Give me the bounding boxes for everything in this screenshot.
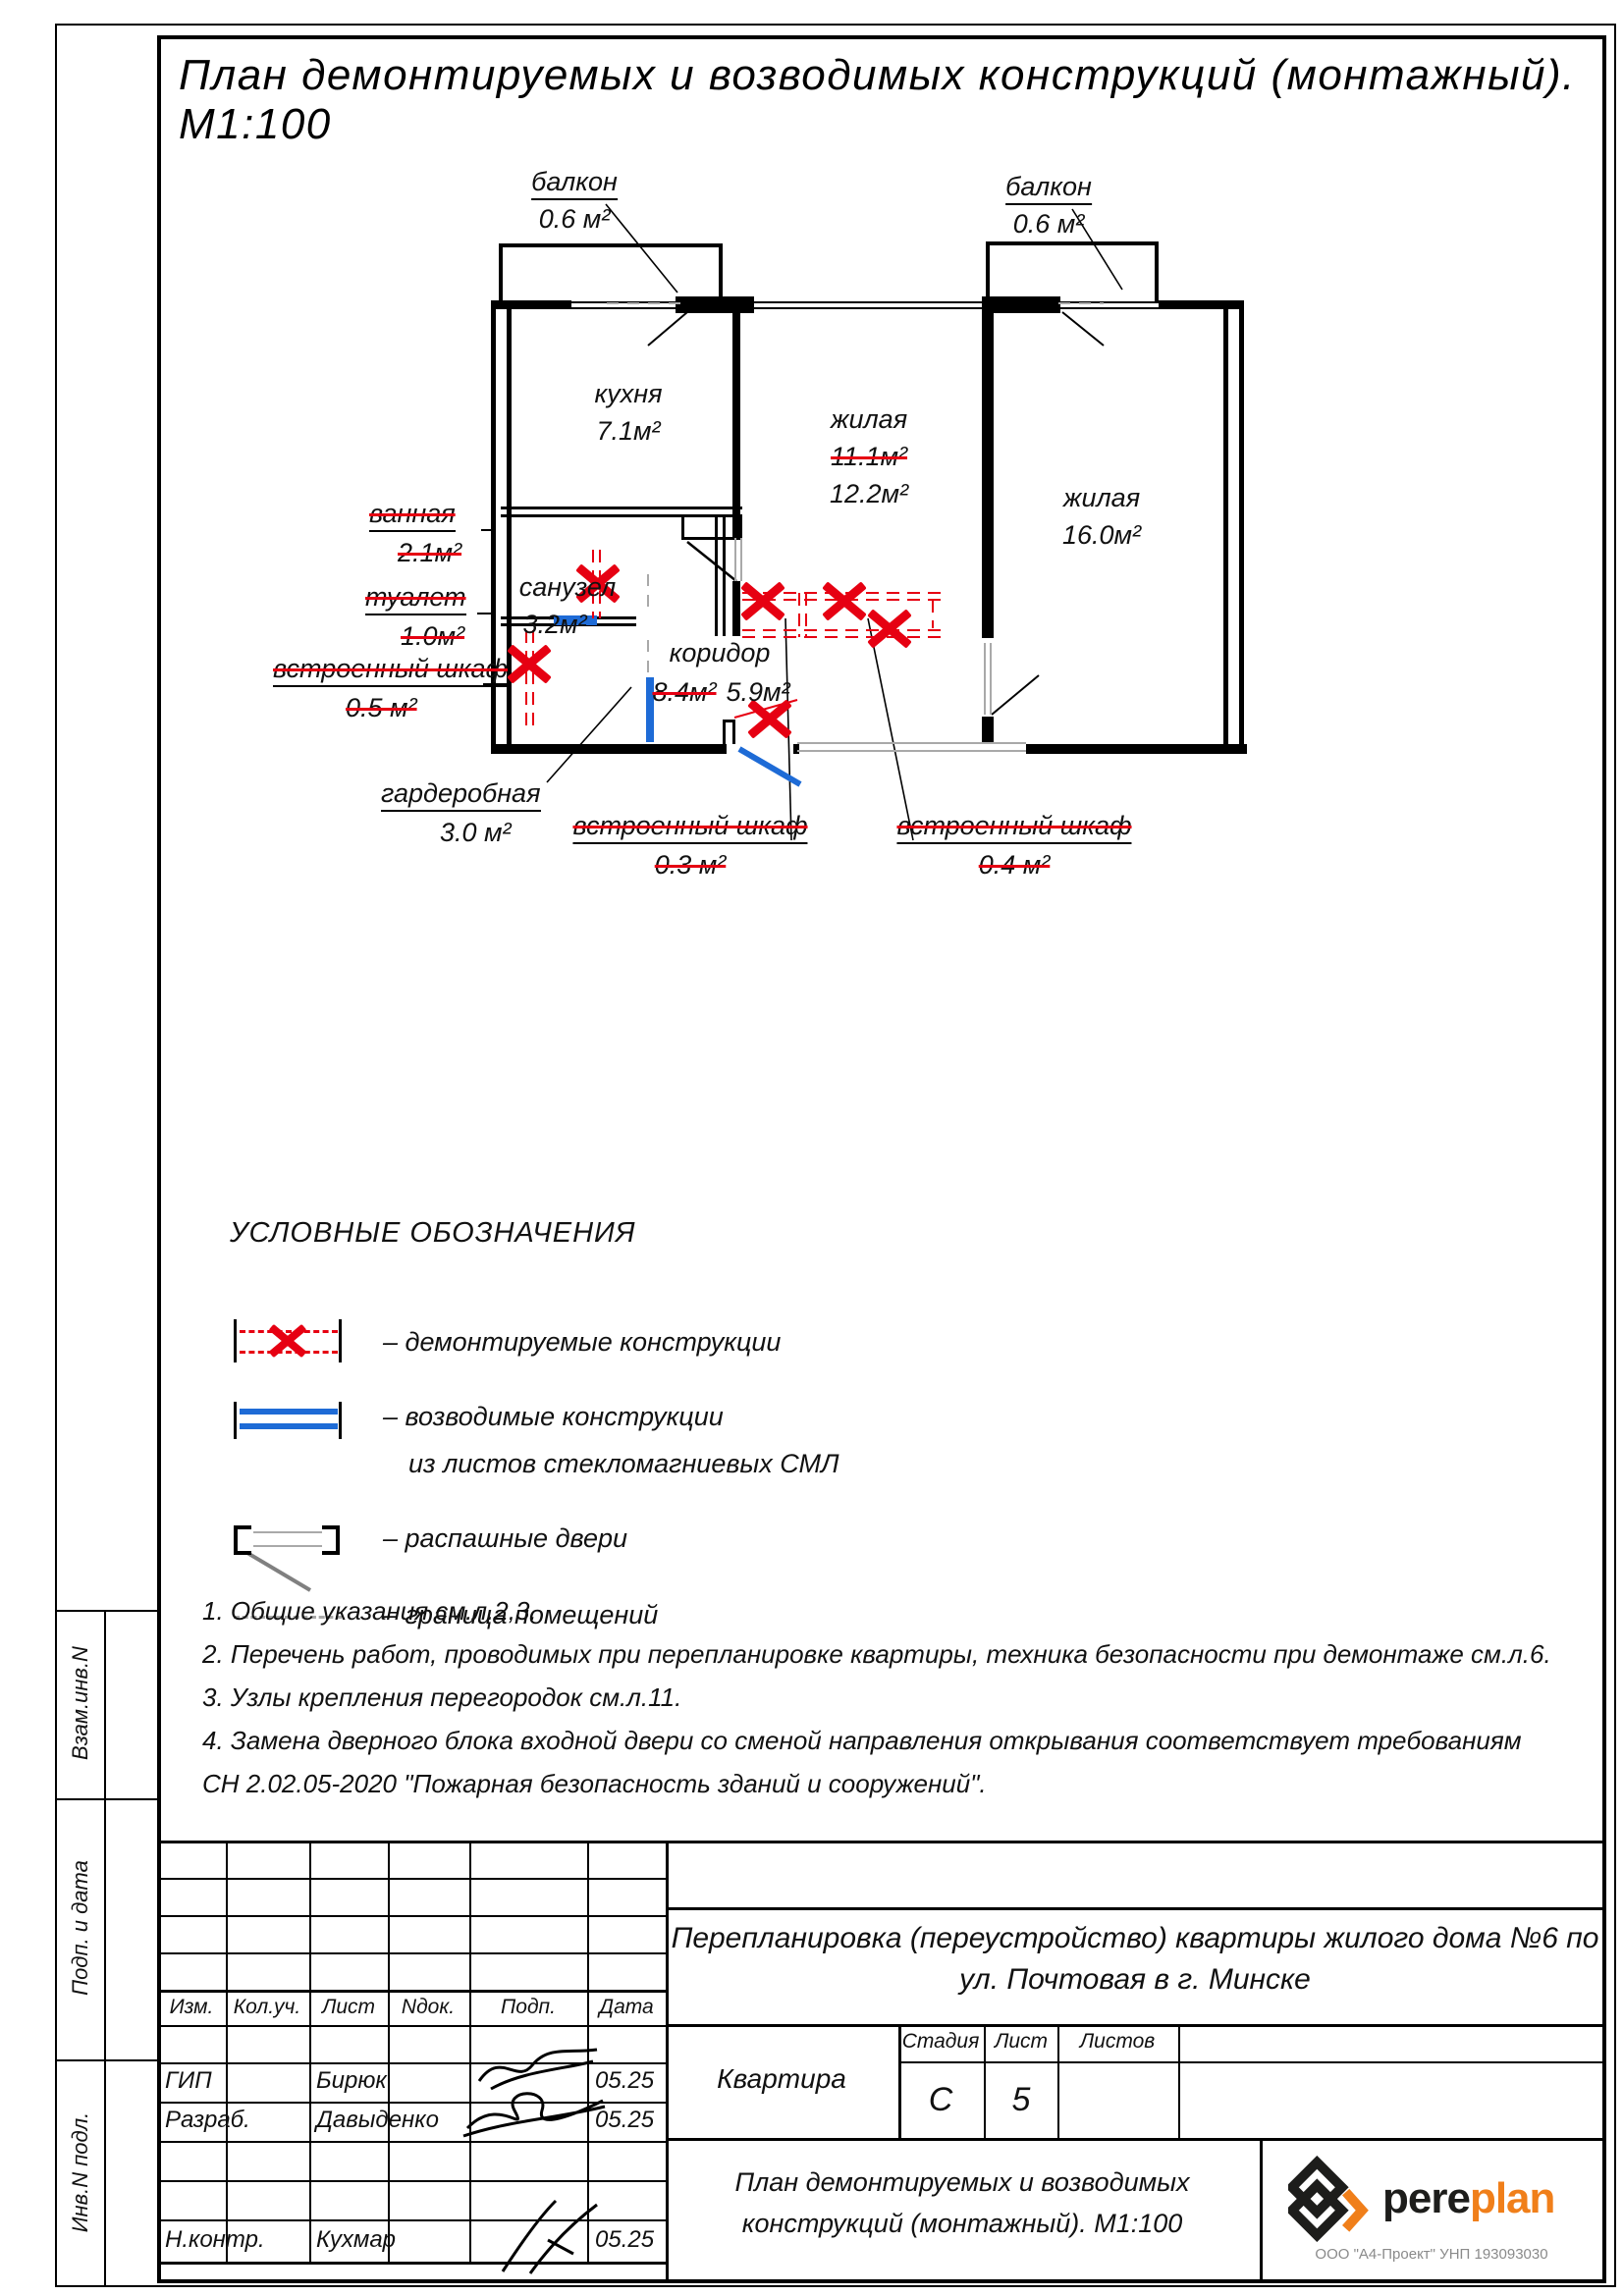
stamp-line: [984, 2024, 986, 2138]
door-swing-balcony-right: [1062, 312, 1104, 346]
stamp-role-razrab: Разраб.: [165, 2107, 250, 2134]
stamp-sheet-label: Лист: [995, 2030, 1048, 2054]
legend-symbol-new: [240, 1409, 338, 1415]
room-label-living2: жилая: [1063, 483, 1140, 513]
room-label-living1: жилая: [831, 404, 907, 435]
door-swing-balcony-left: [648, 312, 687, 346]
stamp-line: [388, 1841, 390, 2264]
stamp-line: [226, 1841, 228, 2264]
legend-symbol-new: [339, 1402, 342, 1439]
legend-item-new: – возводимые конструкции: [383, 1402, 724, 1432]
stamp-col-izm: Изм.: [170, 1996, 214, 2019]
stamp-line: [157, 2180, 666, 2182]
sidebar-label-vzam: Взам.инв.N: [68, 1625, 93, 1782]
stamp-col-list: Лист: [322, 1996, 375, 2019]
room-area-closet1: 0.3 м²: [655, 850, 727, 881]
legend-heading: УСЛОВНЫЕ ОБОЗНАЧЕНИЯ: [230, 1217, 636, 1250]
legend-symbol-demolition: [339, 1319, 342, 1362]
company-logo: pereplan: [1288, 2156, 1554, 2242]
room-label-closet2: встроенный шкаф: [896, 811, 1131, 844]
room-area-sanuzel: 3.2м²: [522, 610, 586, 640]
stamp-object: Квартира: [717, 2063, 846, 2095]
stamp-line: [309, 1841, 311, 2264]
sidebar-divider: [55, 1798, 157, 1800]
legend-symbol-new: [234, 1402, 237, 1439]
room-label-wardrobe: гардеробная: [381, 778, 541, 812]
room-label-sanuzel: санузел: [519, 572, 616, 603]
room-label-closet1: встроенный шкаф: [572, 811, 807, 844]
leader-balcony-left: [606, 204, 677, 293]
stamp-doc-title-line1: План демонтируемых и возводимых: [734, 2167, 1189, 2198]
door-swing-kitchen: [687, 542, 736, 581]
stamp-line: [157, 2025, 666, 2027]
stamp-name-razrab: Давыденко: [316, 2107, 439, 2134]
room-label-toilet: туалет: [365, 582, 466, 615]
room-area-living1-old: 11.1м²: [831, 442, 907, 472]
stamp-sheet-value: 5: [1012, 2081, 1031, 2119]
demolition-x-icon: [822, 579, 867, 624]
stamp-line: [157, 1915, 666, 1917]
note-line: 1. Общие указания см.л.2,3.: [202, 1596, 537, 1627]
stamp-stage-label: Стадия: [902, 2030, 980, 2054]
note-line: 2. Перечень работ, проводимых при перепл…: [202, 1639, 1551, 1670]
stamp-line: [666, 1907, 1606, 1910]
stamp-project-line2: ул. Почтовая в г. Минске: [959, 1963, 1311, 1997]
room-area-wardrobe: 3.0 м²: [440, 818, 512, 848]
room-label-closet-left: встроенный шкаф: [273, 654, 508, 687]
signature: [460, 2081, 607, 2142]
stamp-doc-title-line2: конструкций (монтажный). М1:100: [742, 2209, 1183, 2239]
stamp-line: [898, 2024, 901, 2138]
stamp-col-podp: Подп.: [501, 1996, 556, 2019]
stamp-line: [157, 1878, 666, 1880]
room-area-living1-new: 12.2м²: [830, 479, 908, 509]
legend-item-new-2: из листов стекломагниевых СМЛ: [408, 1449, 839, 1479]
legend-item-demolition: – демонтируемые конструкции: [383, 1327, 781, 1358]
room-area-kitchen: 7.1м²: [596, 416, 660, 447]
room-label-kitchen: кухня: [594, 379, 662, 409]
stamp-col-data: Дата: [599, 1996, 653, 2019]
stamp-stage-value: С: [929, 2081, 953, 2119]
leader-wardrobe: [547, 687, 631, 782]
logo-text-plan: plan: [1470, 2174, 1554, 2222]
stamp-line: [1260, 2138, 1263, 2281]
stamp-sheets-label: Листов: [1080, 2030, 1155, 2054]
room-area-bathroom: 2.1м²: [398, 538, 461, 568]
stamp-line: [1178, 2024, 1180, 2138]
logo-text-pere: pere: [1382, 2174, 1470, 2222]
demolition-x-icon: [867, 607, 912, 652]
room-area-balcony-left: 0.6 м²: [539, 204, 611, 235]
room-label-balcony-left: балкон: [531, 167, 618, 200]
room-area-corridor-new: 5.9м²: [726, 677, 789, 708]
room-label-corridor: коридор: [670, 638, 771, 668]
stamp-line: [666, 2138, 1606, 2141]
stamp-name-nkontr: Кухмар: [316, 2226, 396, 2254]
signature: [491, 2195, 609, 2279]
room-area-toilet: 1.0м²: [401, 621, 464, 652]
legend-symbol-door: [253, 1531, 322, 1533]
stamp-line: [666, 2024, 1606, 2027]
legend-item-doors: – распашные двери: [383, 1523, 627, 1554]
stamp-line: [157, 1841, 1606, 1843]
legend-door-swing: [247, 1553, 310, 1590]
legend-symbol-door: [322, 1551, 340, 1555]
sidebar-label-podp: Подп. и дата: [68, 1849, 93, 2006]
sidebar-divider: [104, 1610, 106, 2287]
stamp-role-nkontr: Н.контр.: [165, 2226, 265, 2254]
stamp-line: [1057, 2024, 1059, 2138]
new-door-swing: [739, 749, 800, 784]
legend-symbol-door: [234, 1551, 251, 1555]
room-area-balcony-right: 0.6 м²: [1013, 209, 1085, 240]
company-name: ООО "А4-Проект" УНП 193093030: [1315, 2246, 1547, 2263]
stamp-project-line1: Перепланировка (переустройство) квартиры…: [672, 1922, 1599, 1955]
room-area-corridor-old: 8.4м²: [652, 677, 716, 708]
drawing-sheet: План демонтируемых и возводимых конструк…: [0, 0, 1623, 2296]
stamp-line: [898, 2061, 1606, 2063]
legend-symbol-demolition: [234, 1319, 237, 1362]
stamp-line: [157, 1990, 666, 1993]
demolition-x-icon: [507, 642, 552, 687]
sidebar-divider: [55, 2059, 157, 2061]
sidebar-label-inv: Инв.N подл.: [68, 2094, 93, 2251]
room-label-bathroom: ванная: [369, 499, 456, 532]
stamp-role-gip: ГИП: [165, 2067, 212, 2095]
stamp-col-koluch: Кол.уч.: [234, 1996, 300, 2019]
legend-symbol-new: [240, 1423, 338, 1429]
stamp-name-gip: Бирюк: [316, 2067, 387, 2095]
stamp-col-ndok: Nдок.: [402, 1996, 455, 2019]
room-label-balcony-right: балкон: [1005, 172, 1092, 205]
legend-symbol-door: [253, 1545, 322, 1547]
stamp-line: [469, 1841, 471, 2264]
demolition-x-icon: [740, 579, 785, 624]
stamp-line: [157, 1952, 666, 1954]
note-line: 4. Замена дверного блока входной двери с…: [202, 1726, 1522, 1756]
door-swing-living2: [992, 675, 1039, 715]
note-line: СН 2.02.05-2020 "Пожарная безопасность з…: [202, 1769, 987, 1799]
room-area-closet2: 0.4 м²: [979, 850, 1051, 881]
room-area-living2: 16.0м²: [1062, 520, 1141, 551]
room-area-closet-left: 0.5 м²: [346, 693, 417, 723]
demolition-x-icon: [268, 1321, 307, 1361]
logo-diamond-icon: [1288, 2156, 1375, 2242]
note-line: 3. Узлы крепления перегородок см.л.11.: [202, 1682, 681, 1713]
sidebar-divider: [55, 1610, 157, 1612]
